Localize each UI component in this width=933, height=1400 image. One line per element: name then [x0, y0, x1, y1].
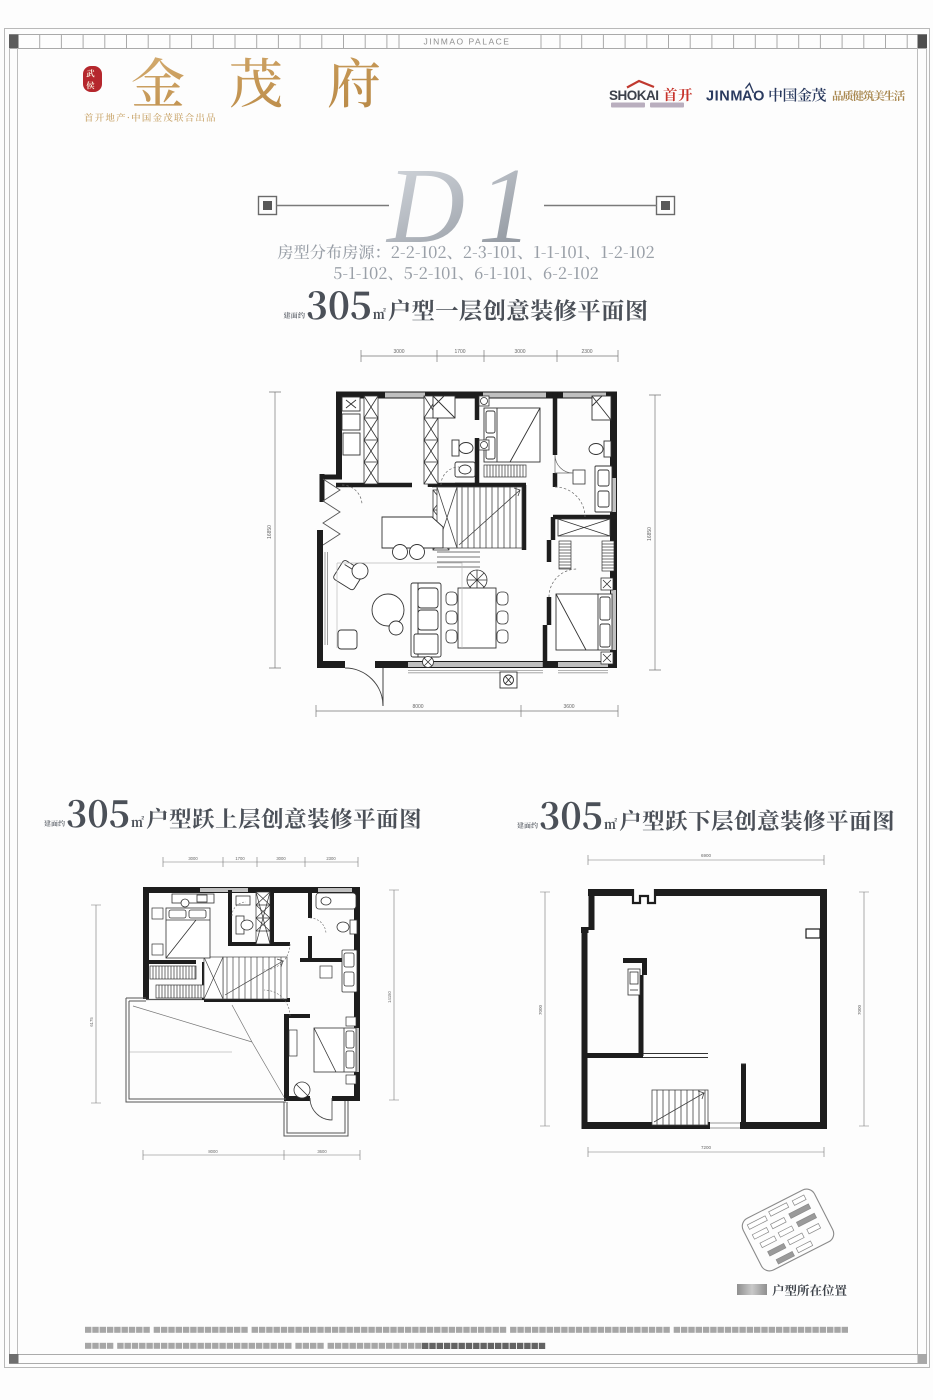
- svg-text:3000: 3000: [276, 856, 286, 861]
- svg-text:16850: 16850: [267, 525, 273, 539]
- svg-text:3600: 3600: [563, 704, 574, 710]
- svg-text:16850: 16850: [647, 527, 653, 541]
- svg-text:3600: 3600: [317, 1149, 327, 1154]
- svg-text:JINMAO PALACE: JINMAO PALACE: [424, 37, 511, 47]
- svg-text:1700: 1700: [235, 856, 245, 861]
- svg-text:SHOKAI: SHOKAI: [609, 88, 659, 103]
- svg-text:14150: 14150: [387, 991, 392, 1003]
- svg-text:JINMAO: JINMAO: [706, 89, 765, 105]
- svg-text:7000: 7000: [538, 1004, 543, 1015]
- svg-text:8000: 8000: [412, 704, 423, 710]
- svg-text:2300: 2300: [326, 856, 336, 861]
- svg-text:1700: 1700: [454, 349, 465, 355]
- svg-text:2300: 2300: [581, 349, 592, 355]
- svg-text:8000: 8000: [208, 1149, 218, 1154]
- svg-text:3000: 3000: [514, 349, 525, 355]
- svg-text:7200: 7200: [701, 1145, 712, 1150]
- svg-text:3000: 3000: [188, 856, 198, 861]
- svg-text:6900: 6900: [701, 853, 712, 858]
- svg-text:3000: 3000: [393, 349, 404, 355]
- svg-text:7000: 7000: [857, 1004, 862, 1015]
- svg-text:6175: 6175: [89, 1017, 94, 1027]
